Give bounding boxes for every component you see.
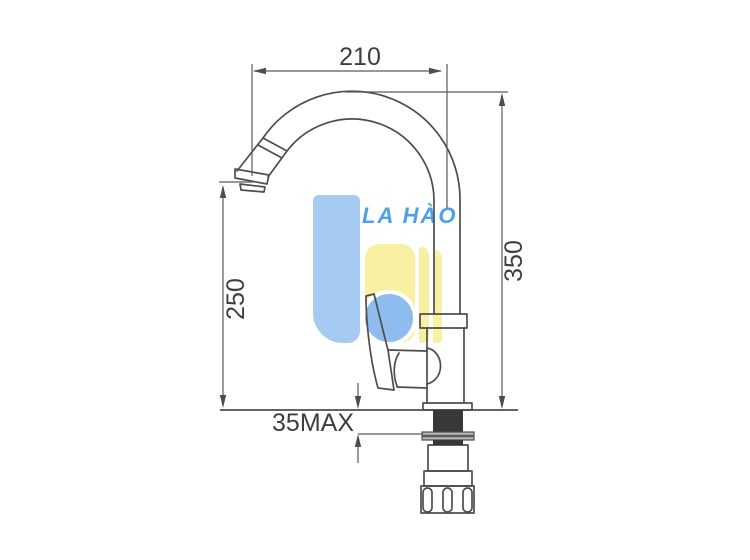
nut-flute [463,488,472,512]
handle-joint-curve [394,353,399,386]
threaded-shank [433,410,463,433]
dimension-label-max-deck-thickness: 35MAX [254,410,354,436]
handle-joint-bottom [397,387,427,388]
dimension-arrowheads [220,68,505,447]
aerator-lip [240,184,265,192]
handle-lever [366,294,394,390]
dimension-label-spout-outlet-height: 250 [223,278,249,320]
body-collar [420,314,467,328]
cartridge-boss [427,348,441,384]
faucet-outline [235,91,474,513]
dimension-label-overall-height: 350 [501,240,527,282]
nozzle-edge [237,138,263,171]
nut-flute [423,488,432,512]
faucet-line-drawing [0,0,750,560]
handle-joint-top [388,350,427,351]
spout-tube-inner [287,119,434,314]
supply-body [428,445,468,471]
base-flange [423,403,472,410]
faucet-dimension-diagram: LA HÀO [0,0,750,560]
dimension-label-spout-reach: 210 [320,44,400,70]
threaded-shank-lower [433,440,463,445]
nut-flute [443,488,452,512]
supply-body-wide [424,471,472,486]
body-sides [427,328,464,403]
mounting-nut [421,486,474,513]
spout-tube-outer [263,91,460,314]
